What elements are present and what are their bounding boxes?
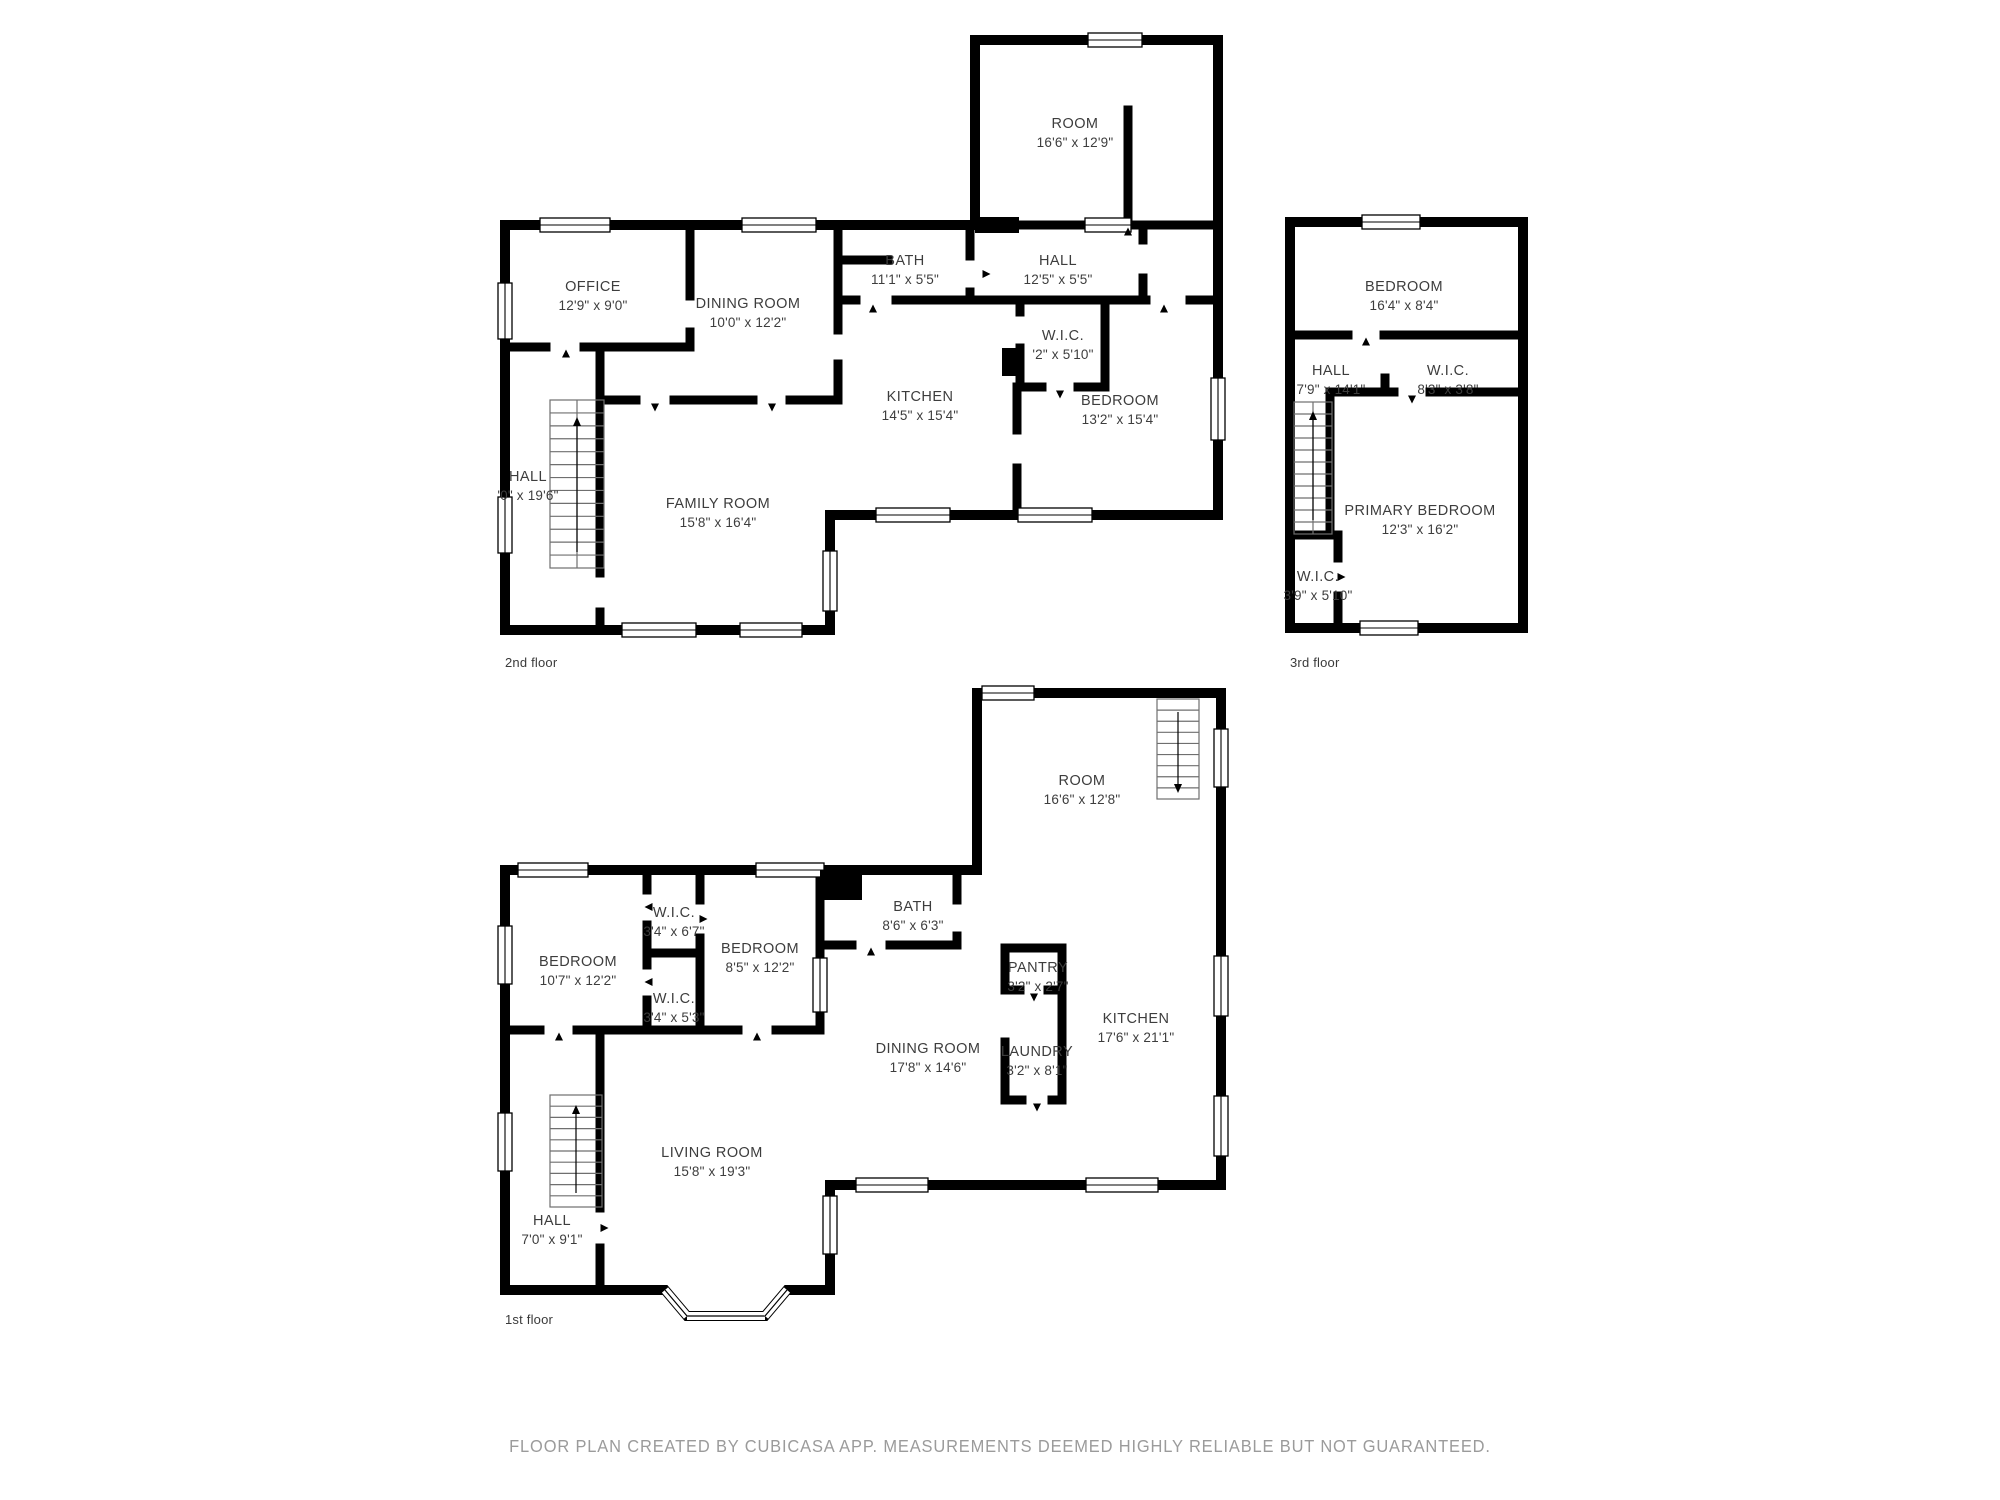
floorplan-canvas: ROOM 16'6" x 12'9" BATH 11'1" x 5'5" HAL… bbox=[0, 0, 2000, 1500]
floor-1-plan bbox=[498, 686, 1228, 1316]
disclaimer-text: FLOOR PLAN CREATED BY CUBICASA APP. MEAS… bbox=[60, 1436, 1940, 1457]
floor-3-caption: 3rd floor bbox=[1290, 655, 1340, 670]
floor-2-caption: 2nd floor bbox=[505, 655, 557, 670]
floorplan-drawing bbox=[0, 0, 2000, 1500]
floor-2-plan bbox=[498, 33, 1225, 637]
floor-1-caption: 1st floor bbox=[505, 1312, 553, 1327]
floor-3-plan bbox=[1290, 215, 1523, 635]
